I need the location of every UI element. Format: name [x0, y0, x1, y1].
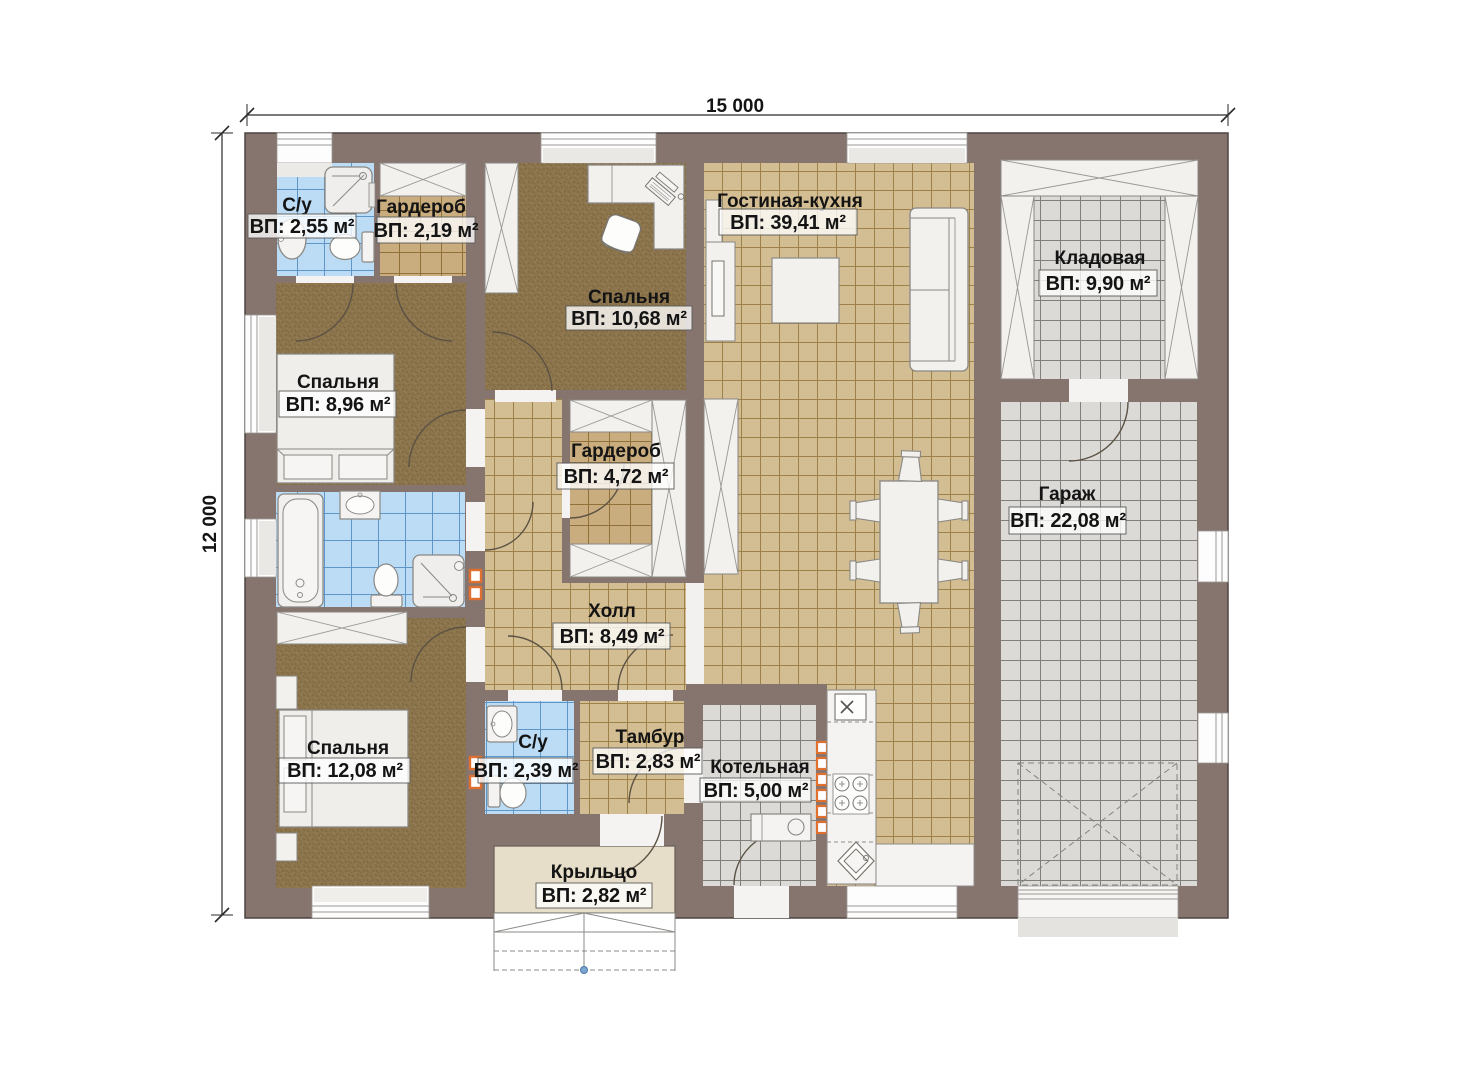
svg-text:Крыльцо: Крыльцо: [551, 862, 637, 883]
svg-text:ВП: 12,08 м²: ВП: 12,08 м²: [287, 760, 403, 782]
svg-text:ВП: 4,72 м²: ВП: 4,72 м²: [564, 466, 669, 488]
svg-text:С/у: С/у: [282, 195, 312, 216]
svg-text:ВП: 2,19 м²: ВП: 2,19 м²: [374, 220, 479, 242]
svg-text:15 000: 15 000: [706, 96, 764, 117]
svg-text:ВП: 9,90 м²: ВП: 9,90 м²: [1046, 273, 1151, 295]
svg-text:Кладовая: Кладовая: [1055, 248, 1146, 269]
svg-text:ВП: 5,00 м²: ВП: 5,00 м²: [704, 780, 809, 802]
svg-text:ВП: 8,96 м²: ВП: 8,96 м²: [286, 394, 391, 416]
svg-text:Котельная: Котельная: [710, 757, 809, 778]
svg-text:Спальня: Спальня: [297, 372, 379, 393]
svg-text:ВП: 22,08 м²: ВП: 22,08 м²: [1010, 510, 1126, 532]
svg-text:ВП: 10,68 м²: ВП: 10,68 м²: [571, 308, 687, 330]
svg-text:Тамбур: Тамбур: [616, 727, 685, 748]
svg-text:Гараж: Гараж: [1039, 484, 1096, 505]
svg-text:С/у: С/у: [518, 732, 548, 753]
svg-text:ВП: 39,41 м²: ВП: 39,41 м²: [730, 212, 846, 234]
svg-text:ВП: 2,83 м²: ВП: 2,83 м²: [596, 751, 701, 773]
svg-text:12 000: 12 000: [200, 495, 221, 553]
svg-text:Спальня: Спальня: [588, 287, 670, 308]
svg-text:ВП: 2,82 м²: ВП: 2,82 м²: [542, 885, 647, 907]
svg-text:Гардероб: Гардероб: [571, 441, 661, 462]
svg-text:Холл: Холл: [588, 601, 636, 622]
svg-text:Гардероб: Гардероб: [376, 197, 466, 218]
svg-text:Спальня: Спальня: [307, 738, 389, 759]
svg-text:ВП: 2,39 м²: ВП: 2,39 м²: [474, 760, 579, 782]
svg-text:ВП: 8,49 м²: ВП: 8,49 м²: [560, 626, 665, 648]
svg-text:ВП: 2,55 м²: ВП: 2,55 м²: [250, 216, 355, 238]
